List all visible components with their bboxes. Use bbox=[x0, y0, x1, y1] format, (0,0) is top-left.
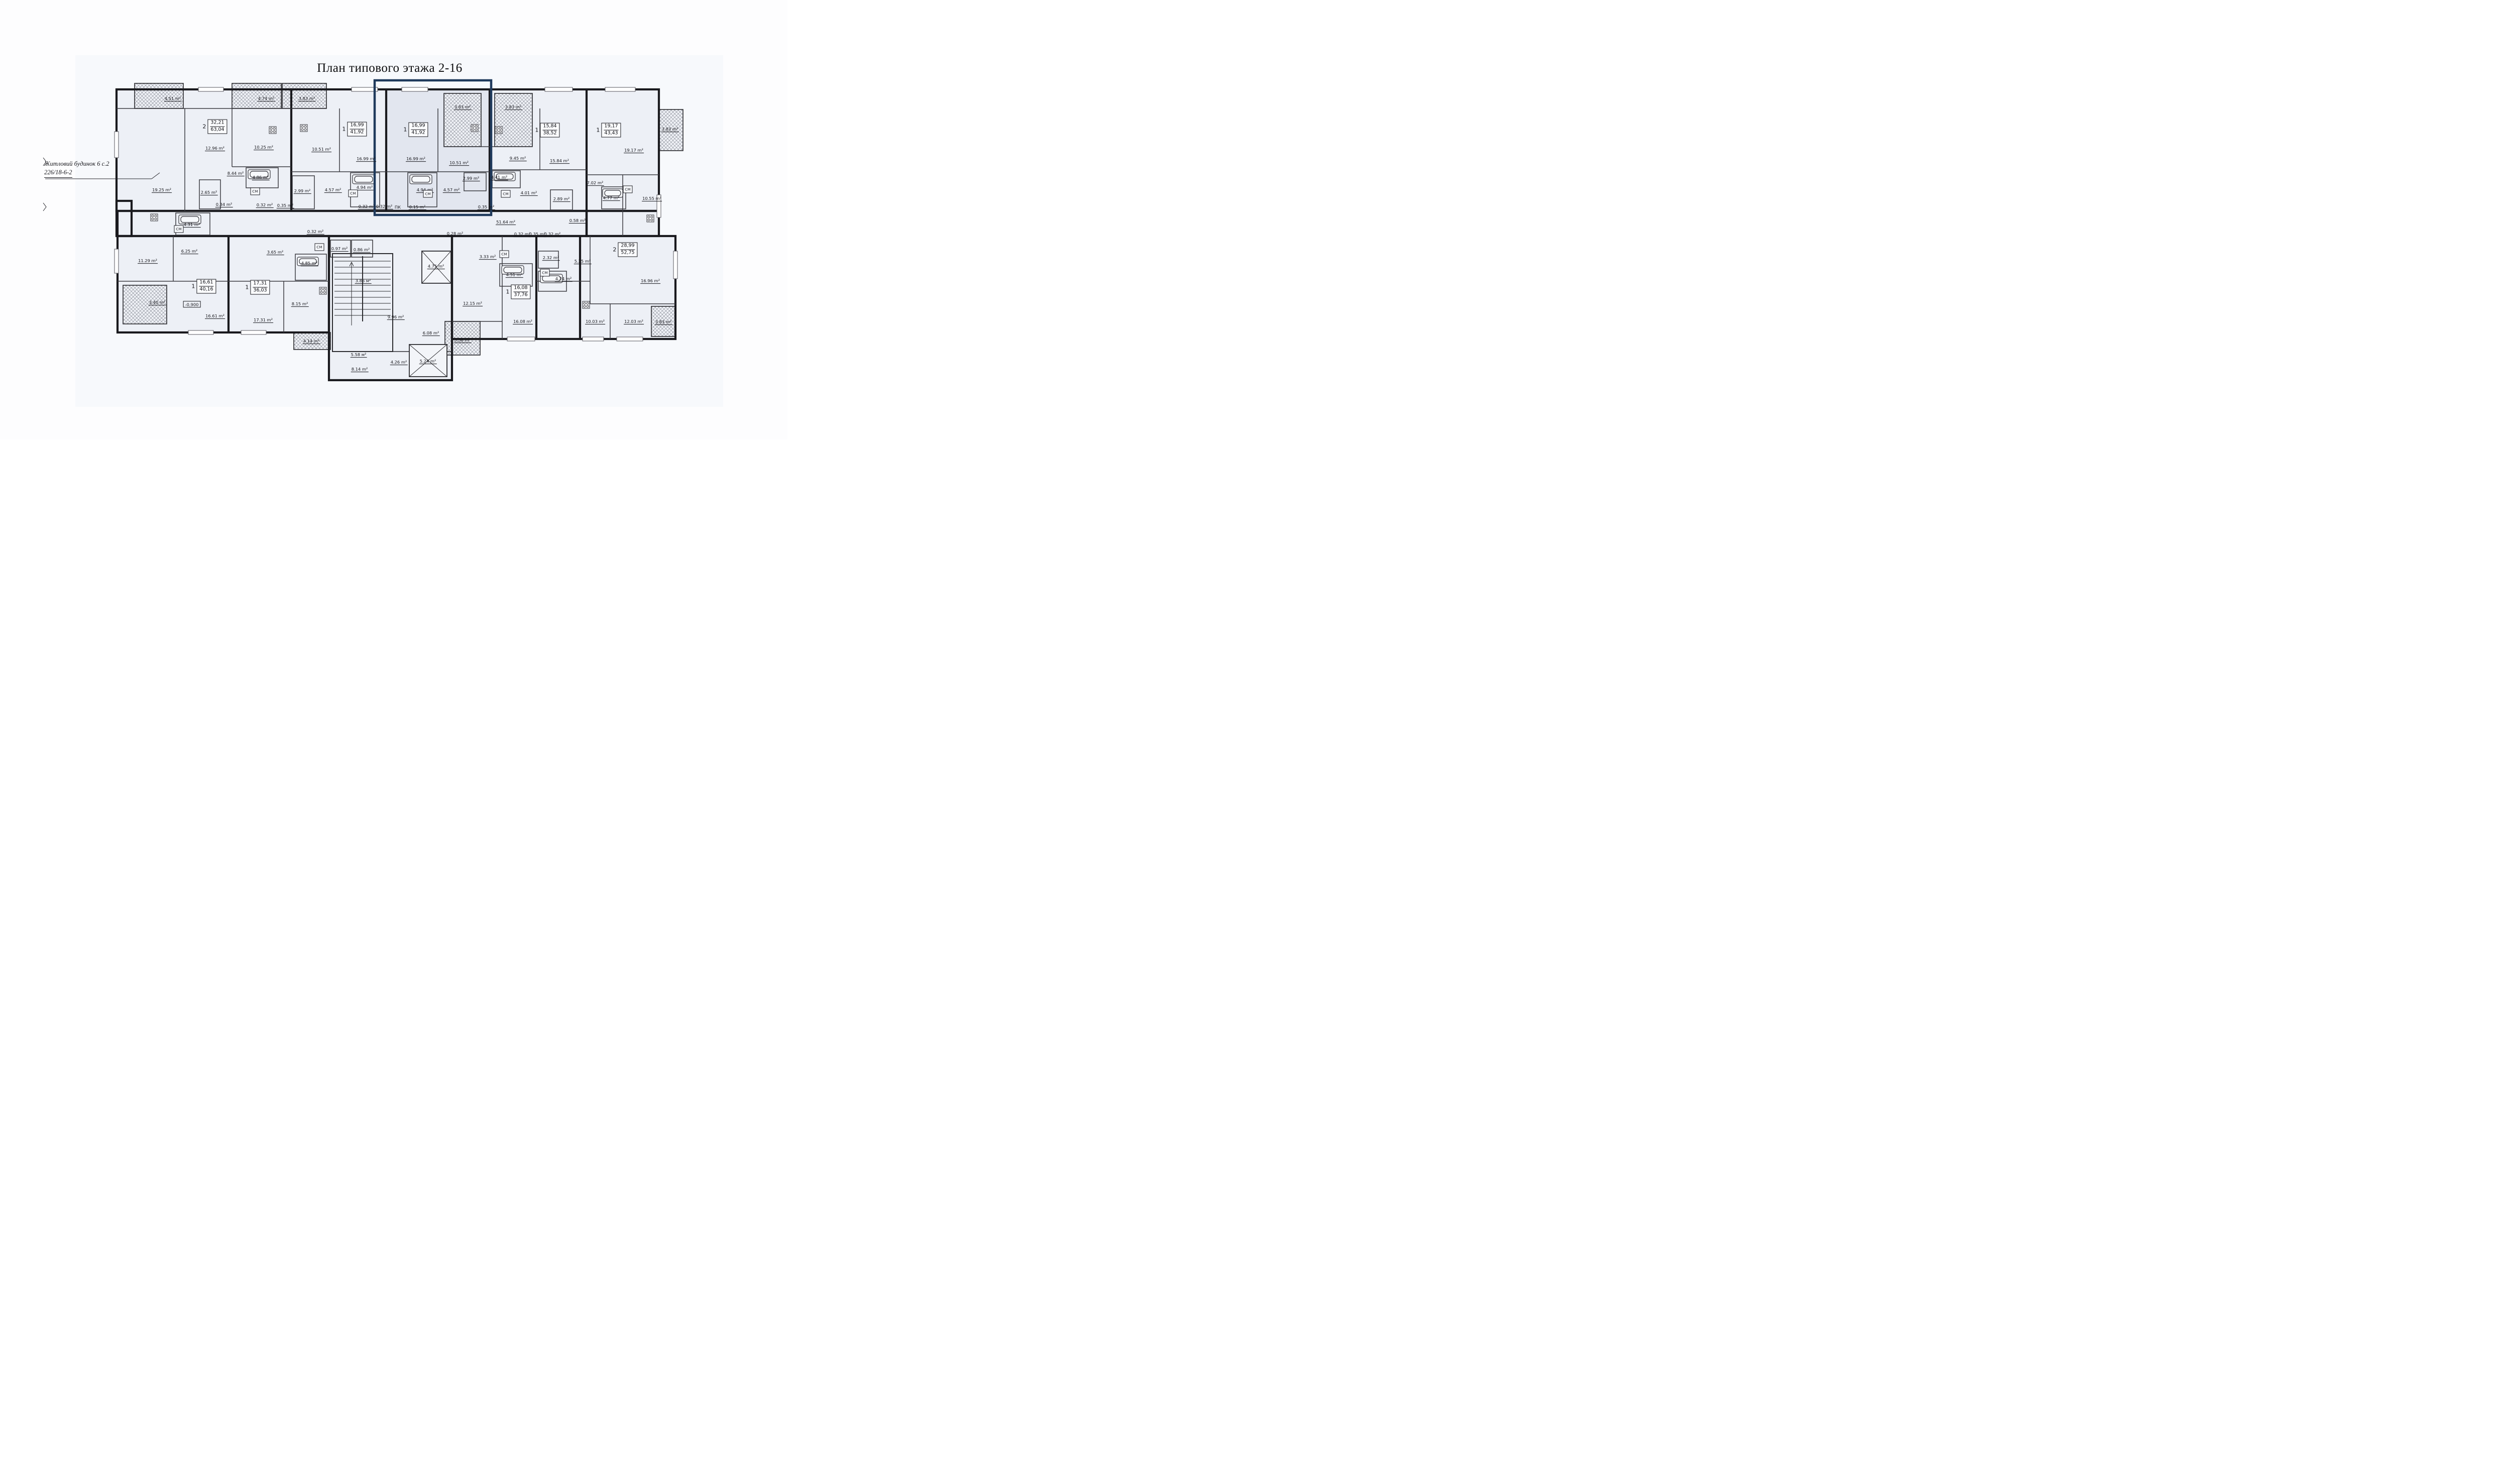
apartment-rooms-count: 2 bbox=[613, 247, 616, 253]
apartment-rooms-count: 2 bbox=[202, 124, 206, 130]
room-area-label: 10.51 m² bbox=[449, 161, 469, 166]
apartment-living-area: 17,31 bbox=[253, 281, 267, 288]
washing-machine-label: СМ bbox=[315, 244, 324, 251]
room-area-label: 3.40 m² bbox=[149, 300, 166, 305]
room-area-label: 5.25 m² bbox=[574, 259, 592, 264]
room-area-label: 0.35 m² bbox=[277, 203, 294, 208]
room-area-label: 0.32 m² bbox=[307, 230, 324, 235]
room-area-label: 2.32 m² bbox=[542, 256, 560, 261]
apartment-info-box: 119,1743,43 bbox=[596, 123, 621, 138]
washing-machine-label: СМ bbox=[349, 190, 358, 197]
room-area-label: -0,900 bbox=[183, 301, 201, 307]
room-area-label: 10.25 m² bbox=[254, 145, 274, 150]
room-area-label: 4.26 m² bbox=[390, 360, 408, 365]
room-area-label: 16.99 m² bbox=[356, 157, 376, 162]
apartment-area-fraction: 17,3136,03 bbox=[250, 280, 270, 295]
room-area-label: 8.14 m² bbox=[351, 367, 369, 372]
room-area-label: 4.14 m² bbox=[303, 339, 320, 344]
apartment-total-area: 36,03 bbox=[253, 288, 267, 294]
room-area-label: 4.31 m² bbox=[183, 222, 201, 227]
apartment-living-area: 16,61 bbox=[199, 280, 213, 287]
room-area-label: 4.51 m² bbox=[164, 96, 182, 101]
room-area-label: 3.83 m² bbox=[454, 105, 472, 110]
room-area-label: 8.15 m² bbox=[291, 302, 309, 307]
apartment-area-fraction: 28,9952,75 bbox=[618, 243, 637, 257]
room-area-label: 11.29 m² bbox=[138, 259, 158, 264]
room-area-label: 7.02 m² bbox=[587, 181, 604, 186]
room-area-label: 4.57 m² bbox=[324, 188, 342, 193]
apartment-living-area: 28,99 bbox=[620, 244, 635, 250]
apartment-area-fraction: 32,2163,04 bbox=[207, 120, 227, 134]
apartment-info-box: 116,9941,92 bbox=[342, 122, 367, 137]
room-area-label: 4.85 m² bbox=[301, 261, 318, 266]
room-area-label: 6.25 m² bbox=[181, 249, 198, 254]
room-area-label: 3.65 m² bbox=[267, 250, 284, 255]
room-area-label: 12.96 m² bbox=[205, 146, 225, 151]
apartment-info-box: 228,9952,75 bbox=[613, 243, 637, 257]
room-area-label: 16.96 m² bbox=[640, 279, 660, 284]
apartment-living-area: 15,84 bbox=[542, 124, 557, 131]
room-area-label: 2.89 m² bbox=[553, 197, 570, 202]
building-annotation-line2: 226/18-6-2 bbox=[44, 168, 72, 177]
washing-machine-label: СМ bbox=[501, 190, 511, 198]
washing-machine-label: СМ bbox=[174, 225, 184, 233]
washing-machine-label: СМ bbox=[423, 190, 433, 198]
room-area-label: 4.51 m² bbox=[506, 273, 523, 278]
room-area-label: 16.99 m² bbox=[406, 157, 426, 162]
apartment-rooms-count: 1 bbox=[596, 127, 600, 134]
room-area-label: 3.33 m² bbox=[479, 255, 497, 260]
washing-machine-label: СМ bbox=[623, 186, 633, 193]
room-area-label: 0.97 m² bbox=[331, 247, 349, 252]
apartment-info-box: 116,6140,16 bbox=[191, 279, 216, 294]
room-area-label: 0.86 m² bbox=[353, 248, 371, 253]
room-area-label: 51.64 m² bbox=[496, 220, 516, 225]
room-area-label: 12.03 m² bbox=[624, 319, 644, 324]
apartment-area-fraction: 16,9941,92 bbox=[408, 123, 428, 137]
floor-plan-sheet: План типового этажа 2-16 Житловий будино… bbox=[0, 0, 787, 439]
room-area-label: 17.31 m² bbox=[253, 318, 273, 323]
apartment-living-area: 16,99 bbox=[411, 124, 425, 130]
apartment-rooms-count: 1 bbox=[403, 127, 407, 133]
room-area-label: 3.83 m² bbox=[655, 320, 672, 325]
room-area-label: 4.77 m² bbox=[603, 196, 620, 201]
apartment-area-fraction: 15,8438,52 bbox=[540, 123, 559, 138]
apartment-rooms-count: 1 bbox=[506, 289, 509, 295]
room-area-label: 4.75 m² bbox=[427, 264, 445, 269]
room-area-label: 10.55 m² bbox=[642, 196, 662, 201]
apartment-total-area: 63,04 bbox=[210, 127, 224, 133]
apartment-area-fraction: 16,9941,92 bbox=[347, 122, 367, 137]
building-annotation: Житловий будинок 6 с.2 226/18-6-2 bbox=[44, 160, 109, 178]
room-area-label: 4.57 m² bbox=[443, 188, 461, 193]
room-area-label: 5.58 м² bbox=[351, 353, 367, 358]
room-area-label: 3.86 м² bbox=[355, 279, 372, 284]
room-area-label: 9.96 m² bbox=[387, 315, 405, 320]
apartment-rooms-count: 1 bbox=[245, 284, 249, 291]
room-area-label: 0.58 m² bbox=[569, 218, 587, 223]
apartment-living-area: 16,99 bbox=[350, 123, 364, 130]
apartment-total-area: 37,76 bbox=[513, 292, 528, 298]
apartment-rooms-count: 1 bbox=[191, 283, 195, 290]
room-area-label: 19.25 m² bbox=[152, 188, 172, 193]
room-area-label: 16.61 m² bbox=[205, 314, 225, 319]
room-area-label: 8.44 m² bbox=[227, 171, 245, 176]
room-area-label: 3.83 m² bbox=[505, 105, 522, 110]
apartment-area-fraction: 16,6140,16 bbox=[196, 279, 216, 294]
room-area-label: 3.83 m² bbox=[298, 96, 316, 101]
room-area-label: 4.94 m² bbox=[356, 185, 374, 190]
room-area-label: 2.99 m² bbox=[463, 176, 480, 181]
room-area-label: 0.32 m² bbox=[358, 204, 376, 209]
apartment-info-box: 116,9941,92 bbox=[403, 123, 428, 137]
room-area-label: 4.86 m² bbox=[252, 175, 270, 180]
room-area-label: 19.17 m² bbox=[624, 148, 644, 153]
room-area-label: ПК bbox=[394, 205, 401, 210]
room-area-label: 4.24 m² bbox=[555, 277, 573, 282]
room-area-label: 2.99 m² bbox=[294, 189, 311, 194]
room-area-label: 5.24 m² bbox=[419, 359, 437, 364]
apartment-rooms-count: 1 bbox=[342, 126, 346, 133]
apartment-living-area: 32,21 bbox=[210, 121, 224, 127]
apartment-info-box: 232,2163,04 bbox=[202, 120, 227, 134]
room-area-label: 0.32 m² bbox=[256, 203, 274, 208]
room-area-label: 15.84 m² bbox=[549, 159, 569, 164]
apartment-total-area: 43,43 bbox=[604, 131, 618, 137]
room-area-label: 10.51 m² bbox=[311, 147, 331, 152]
room-area-label: 9.45 m² bbox=[509, 156, 527, 161]
room-area-label: 0.32 m² bbox=[544, 232, 561, 237]
apartment-info-box: 115,8438,52 bbox=[535, 123, 559, 138]
apartment-living-area: 19,17 bbox=[604, 124, 618, 131]
apartment-rooms-count: 1 bbox=[535, 127, 538, 134]
apartment-info-box: 116,0837,76 bbox=[506, 285, 530, 299]
washing-machine-label: СМ bbox=[251, 188, 260, 195]
room-area-label: 12.15 m² bbox=[463, 301, 483, 306]
room-area-label: 10.03 m² bbox=[585, 319, 605, 324]
room-area-label: 3.38 m² bbox=[454, 338, 472, 343]
room-area-label: 0.35 m² bbox=[478, 205, 495, 210]
room-area-label: 0.32 m² bbox=[376, 204, 393, 209]
room-area-label: 4.74 m² bbox=[258, 96, 275, 101]
page-title: План типового этажа 2-16 bbox=[317, 61, 462, 75]
room-area-label: 3.83 m² bbox=[661, 127, 679, 132]
room-area-label: 4.41 m² bbox=[491, 175, 508, 180]
room-area-label: 0.34 m² bbox=[215, 202, 233, 207]
apartment-total-area: 38,52 bbox=[542, 131, 557, 137]
room-area-label: 16.08 m² bbox=[513, 319, 533, 324]
apartment-total-area: 41,92 bbox=[350, 130, 364, 136]
apartment-total-area: 40,16 bbox=[199, 287, 213, 293]
washing-machine-label: СМ bbox=[540, 269, 550, 277]
apartment-total-area: 41,92 bbox=[411, 130, 425, 136]
room-area-label: 0.28 m² bbox=[446, 232, 464, 237]
washing-machine-label: СМ bbox=[500, 251, 509, 258]
room-area-label: 2.65 m² bbox=[200, 190, 218, 195]
room-area-label: 4.01 m² bbox=[520, 191, 538, 196]
apartment-area-fraction: 19,1743,43 bbox=[601, 123, 621, 138]
apartment-living-area: 16,08 bbox=[513, 286, 528, 292]
building-annotation-line1: Житловий будинок 6 с.2 bbox=[44, 160, 109, 168]
room-area-label: 6.08 m² bbox=[422, 331, 440, 336]
apartment-info-box: 117,3136,03 bbox=[245, 280, 270, 295]
apartment-area-fraction: 16,0837,76 bbox=[511, 285, 530, 299]
room-area-label: 0.15 m² bbox=[409, 205, 426, 210]
apartment-total-area: 52,75 bbox=[620, 250, 635, 256]
